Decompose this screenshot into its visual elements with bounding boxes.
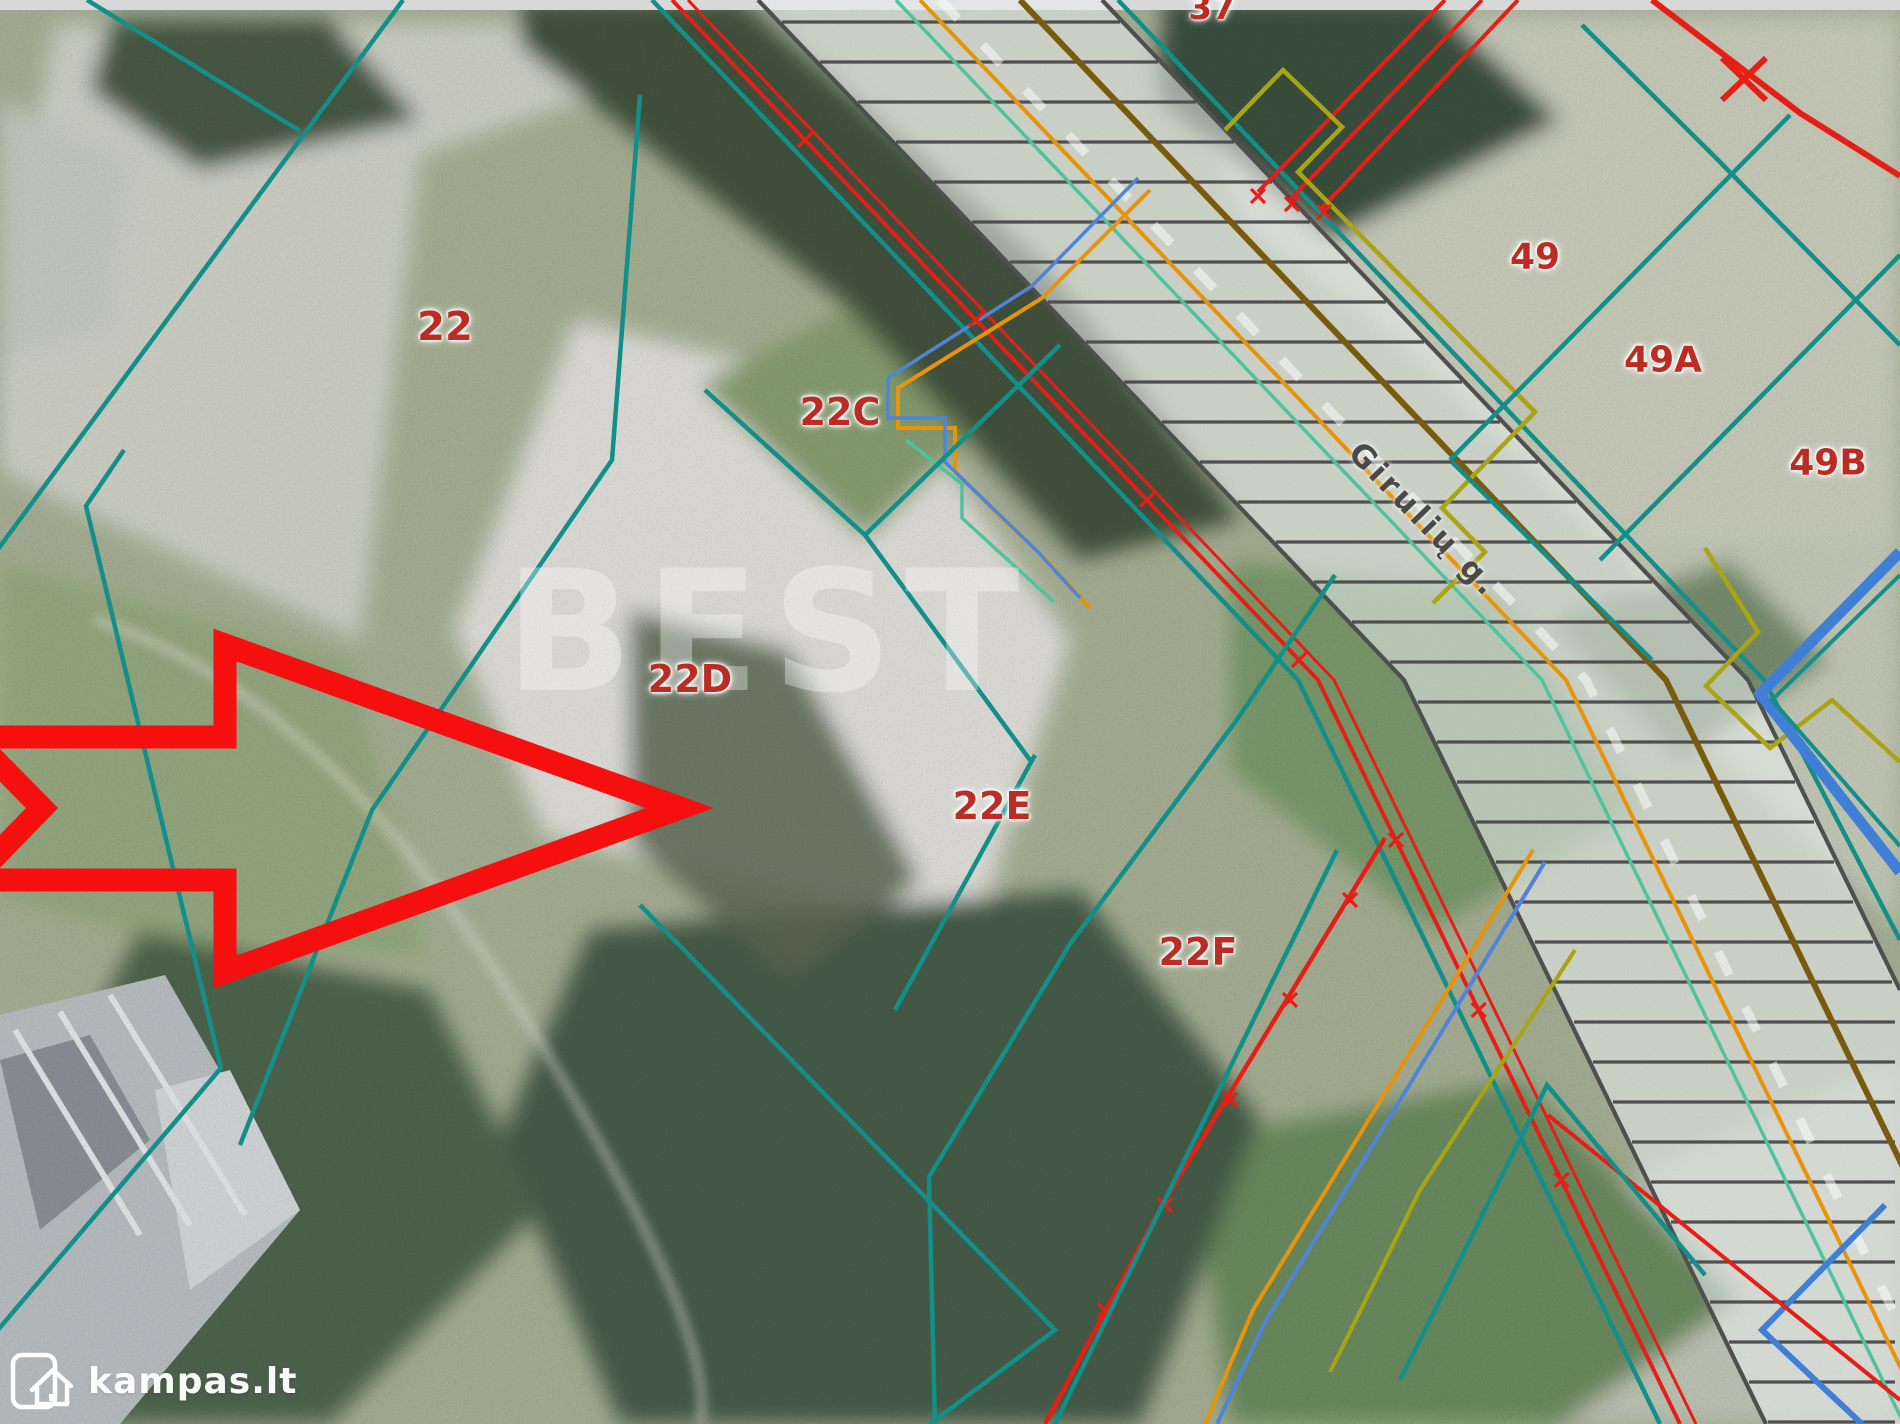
map-viewport[interactable]: BEST Girulių g. 372222C22D22E22F4949A49B… xyxy=(0,0,1900,1424)
cadastral-map-svg xyxy=(0,0,1900,1424)
kampas-logo[interactable]: kampas.lt xyxy=(10,1352,297,1410)
kampas-logo-text: kampas.lt xyxy=(88,1361,297,1402)
kampas-logo-icon xyxy=(10,1352,74,1410)
